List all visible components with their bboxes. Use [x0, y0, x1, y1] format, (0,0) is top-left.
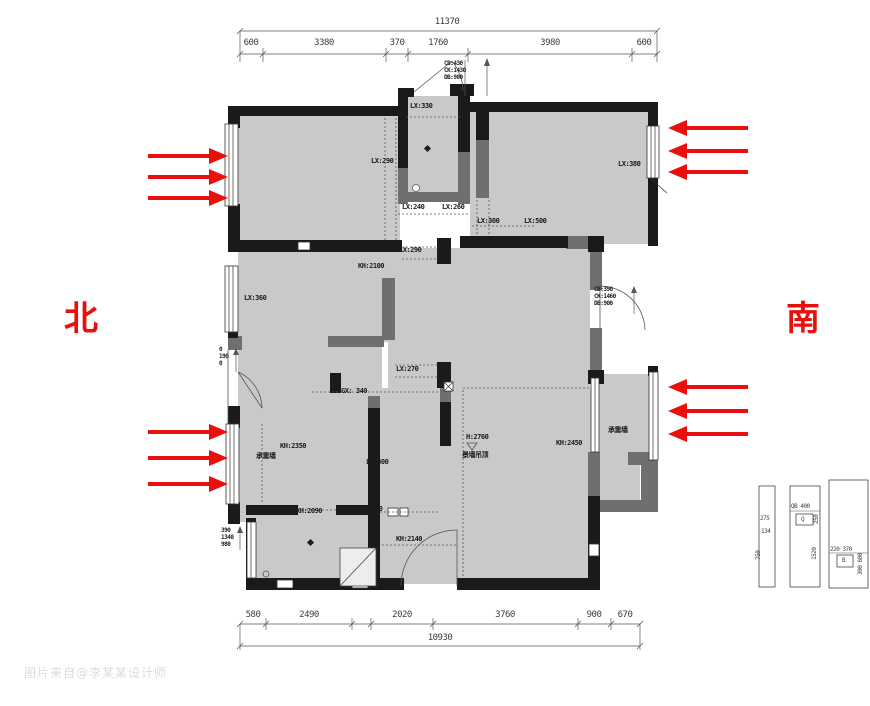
- dim-segment-top: 370: [390, 38, 405, 48]
- plan-label: KH:2350: [280, 443, 306, 450]
- plan-label: LX:300: [366, 459, 388, 466]
- plan-label: 承重墙: [256, 453, 276, 460]
- dim-total-bottom: 10930: [428, 633, 453, 643]
- dim-segment-top: 600: [244, 38, 259, 48]
- legend-boxes: [759, 480, 868, 588]
- plan-label: KH:2450: [556, 440, 582, 447]
- legend-label: 1520: [812, 548, 818, 560]
- airflow-arrow-left: [668, 403, 748, 419]
- dim-segment-bottom: 900: [587, 610, 602, 620]
- dim-segment-bottom: 2490: [299, 610, 319, 620]
- airflow-arrow-left: [668, 120, 748, 136]
- airflow-arrow-right: [148, 476, 228, 492]
- legend-label: B: [842, 558, 845, 564]
- airflow-arrow-left: [668, 143, 748, 159]
- legend-label: Q: [801, 517, 804, 523]
- airflow-arrow-left: [668, 164, 748, 180]
- dim-segment-bottom: 3760: [495, 610, 515, 620]
- legend-label: 134: [761, 529, 770, 535]
- plan-label: KH:2090: [296, 508, 322, 515]
- airflow-arrow-right: [148, 450, 228, 466]
- plan-label: KH:2100: [358, 263, 384, 270]
- dim-segment-top: 1760: [428, 38, 448, 48]
- dim-segment-top: 3380: [314, 38, 334, 48]
- plan-label: H:2760: [466, 434, 488, 441]
- airflow-arrow-left: [668, 426, 748, 442]
- plan-label: LX:240: [402, 204, 424, 211]
- plan-label: LX:290: [371, 158, 393, 165]
- legend-label: 250: [814, 515, 820, 524]
- dim-total-top: 11370: [435, 17, 460, 27]
- plan-label: LX:380: [618, 161, 640, 168]
- plan-label: LX:270: [396, 366, 418, 373]
- dim-segment-bottom: 670: [618, 610, 633, 620]
- shower-corner: [340, 548, 376, 586]
- window-note: 3901340980: [221, 527, 233, 548]
- legend-label: QB 400: [791, 504, 810, 510]
- plan-label: 承重墙: [608, 427, 628, 434]
- compass-north-label: 北: [64, 303, 98, 337]
- legend-label: 300 600: [858, 553, 864, 575]
- legend-label: 275: [760, 516, 769, 522]
- plan-label: LX:330: [410, 103, 432, 110]
- legend-label: 750: [756, 551, 762, 560]
- dim-segment-top: 600: [637, 38, 652, 48]
- dim-segment-top: 3980: [540, 38, 560, 48]
- watermark: 图片来自@李某某设计师: [24, 664, 167, 681]
- airflow-arrow-right: [148, 190, 228, 206]
- floor-plan-canvas: 北 南 LX:330LX:290LX:240LX:260LX:300LX:500…: [0, 0, 870, 706]
- airflow-arrow-left: [668, 379, 748, 395]
- floor-plan-drawing: [0, 0, 870, 706]
- plan-label: KH:2140: [396, 536, 422, 543]
- plan-label: LX:290: [399, 247, 421, 254]
- plan-label: LX:500: [524, 218, 546, 225]
- window-note: CB:430CK:1430DB:900: [444, 60, 466, 81]
- legend-label: 220 370: [830, 547, 852, 553]
- dim-segment-bottom: 580: [246, 610, 261, 620]
- airflow-arrow-right: [148, 148, 228, 164]
- plan-label: GX: 340: [341, 388, 367, 395]
- window-note: CB:390CK:1460DB:900: [594, 286, 616, 307]
- compass-south-label: 南: [786, 303, 820, 337]
- airflow-arrow-right: [148, 169, 228, 185]
- dim-segment-bottom: 2020: [392, 610, 412, 620]
- window-note: 01900: [219, 346, 228, 367]
- plan-label: LX:300: [477, 218, 499, 225]
- plan-label: LX:260: [442, 204, 464, 211]
- plan-label: 景墙吊顶: [462, 452, 488, 459]
- plan-label: LX:230: [360, 506, 382, 513]
- airflow-arrow-right: [148, 424, 228, 440]
- plan-label: LX:360: [244, 295, 266, 302]
